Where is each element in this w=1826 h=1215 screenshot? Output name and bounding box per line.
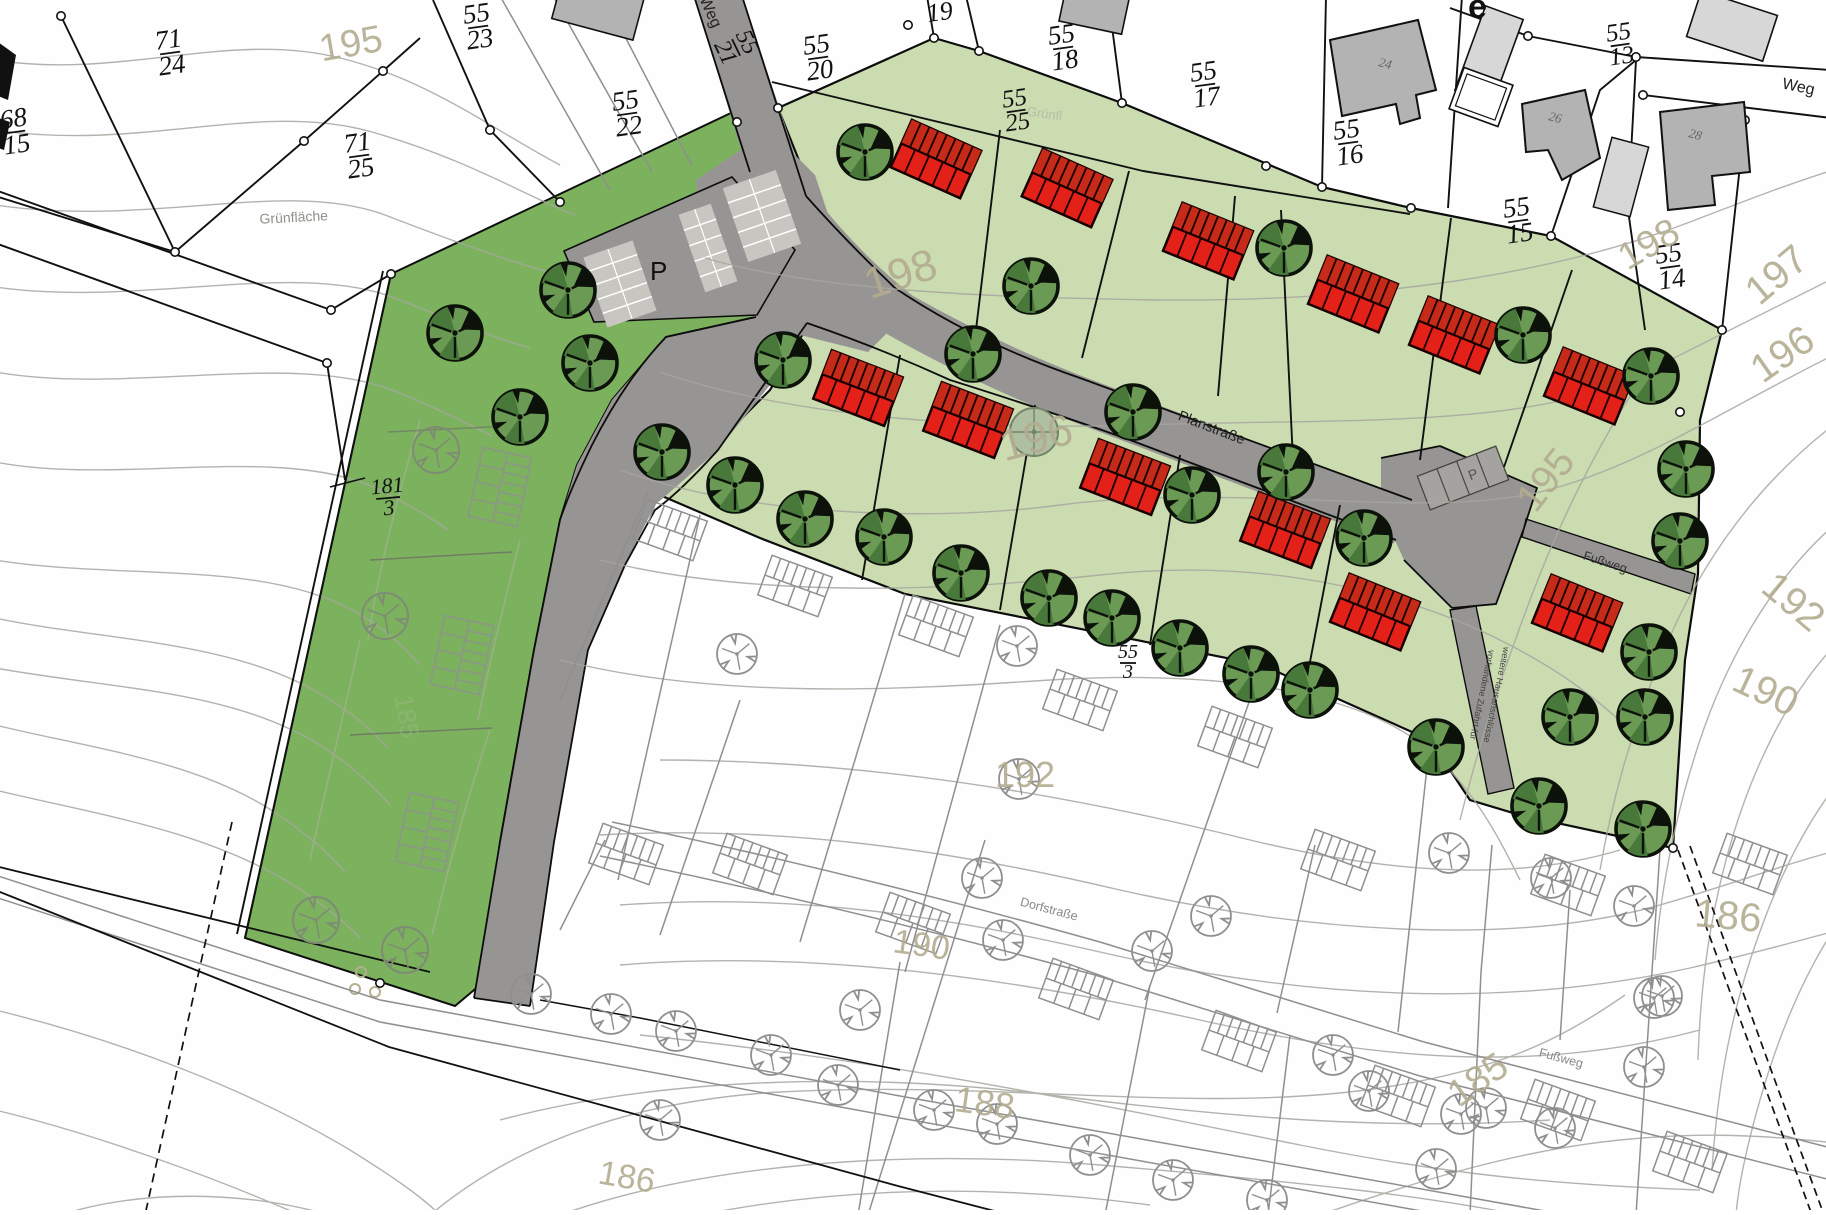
svg-text:190: 190 (891, 922, 952, 968)
svg-text:24: 24 (156, 48, 187, 81)
svg-text:20: 20 (804, 53, 835, 87)
svg-text:19: 19 (925, 0, 955, 28)
svg-text:P: P (650, 256, 667, 286)
svg-text:3: 3 (381, 495, 395, 521)
svg-text:14: 14 (1656, 262, 1687, 295)
svg-text:25: 25 (345, 151, 376, 184)
svg-text:18: 18 (1049, 43, 1080, 77)
svg-text:15: 15 (1504, 216, 1535, 249)
svg-text:186: 186 (1693, 891, 1763, 941)
svg-text:55: 55 (1118, 641, 1138, 663)
svg-text:188: 188 (952, 1078, 1017, 1127)
svg-text:22: 22 (613, 109, 644, 142)
svg-text:192: 192 (995, 754, 1055, 795)
svg-text:3: 3 (1122, 661, 1133, 683)
svg-text:e: e (1468, 0, 1487, 26)
svg-text:15: 15 (1, 127, 32, 160)
svg-text:13: 13 (1607, 41, 1636, 71)
svg-text:16: 16 (1334, 138, 1365, 172)
svg-text:23: 23 (464, 22, 495, 55)
